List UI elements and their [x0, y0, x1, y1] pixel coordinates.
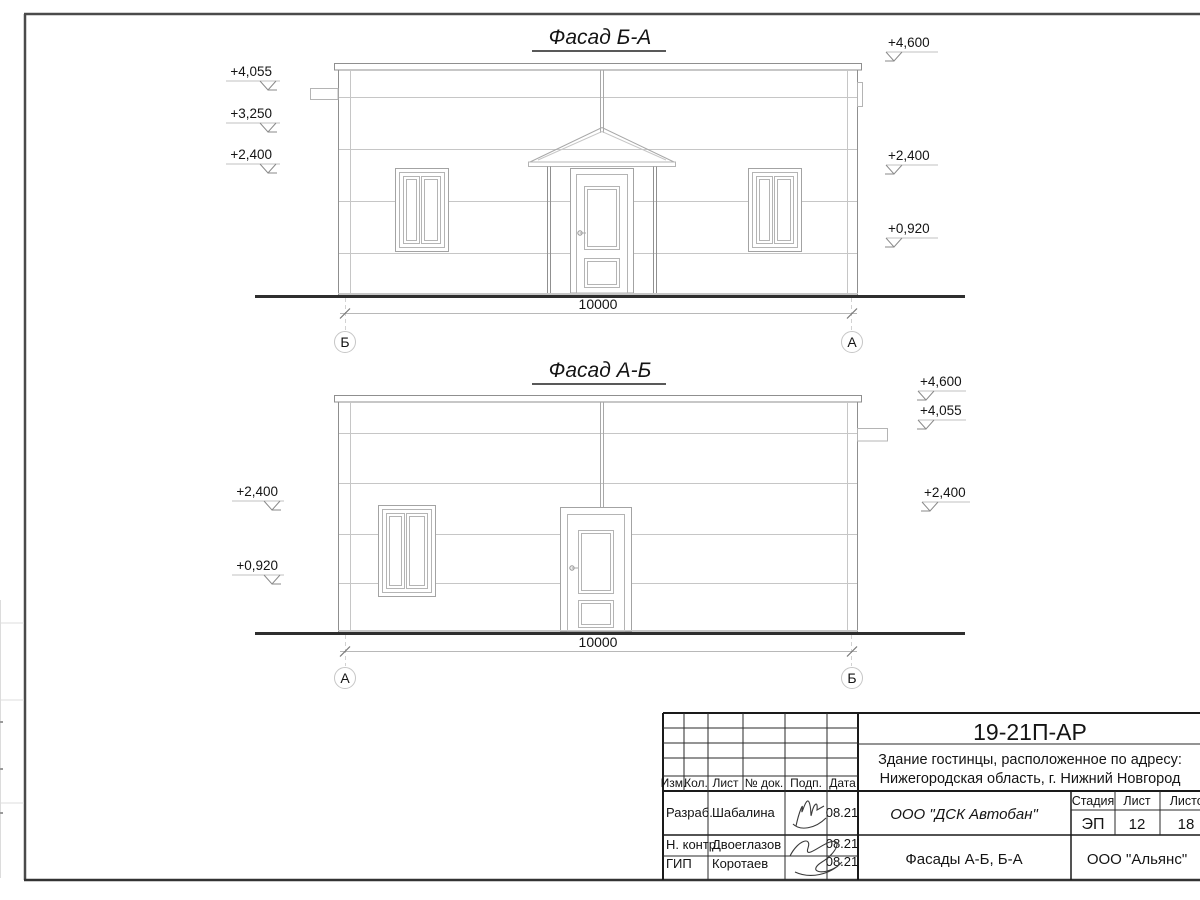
- drawing-sheet: Фасад Б-А: [0, 0, 1200, 900]
- signer-role: Разраб.: [666, 805, 713, 820]
- signer-name: Двоеглазов: [712, 837, 781, 852]
- sheet-value: 12: [1129, 816, 1146, 833]
- svg-text:Б: Б: [340, 334, 349, 350]
- col-podp: Подп.: [790, 776, 822, 790]
- sheets-label: Листов: [1170, 794, 1200, 808]
- project-address-line1: Здание гостинцы, расположенное по адресу…: [878, 752, 1182, 768]
- elevation-arrow-icon: [260, 123, 277, 132]
- elevation-arrow-icon: [921, 502, 938, 511]
- elevation-mark: +4,055: [917, 403, 966, 429]
- elevation-mark: +4,600: [917, 374, 966, 400]
- sheet-label: Лист: [1123, 794, 1150, 808]
- signer-name: Коротаев: [712, 856, 768, 871]
- elevation-arrow-icon: [917, 420, 934, 429]
- elevation-arrow-icon: [885, 238, 902, 247]
- svg-text:+2,400: +2,400: [888, 148, 930, 163]
- elevation-arrow-icon: [264, 575, 281, 584]
- project-address-line2: Нижегородская область, г. Нижний Новгоро…: [880, 771, 1181, 787]
- elevation-arrow-icon: [260, 81, 277, 90]
- elevation-arrow-icon: [885, 52, 902, 61]
- sheet-title: Фасады А-Б, Б-А: [905, 851, 1022, 868]
- elevation-mark: +0,920: [885, 221, 938, 247]
- elevation-mark: +4,055: [226, 64, 280, 90]
- facade-ba-axis-right: А: [842, 332, 863, 353]
- col-ndok: № док.: [745, 776, 783, 790]
- drawing-canvas: Фасад Б-А: [0, 0, 1200, 900]
- col-list: Лист: [712, 776, 739, 790]
- facade-ba-window-right: [749, 169, 802, 252]
- svg-text:+3,250: +3,250: [230, 106, 272, 121]
- svg-text:+4,055: +4,055: [230, 64, 272, 79]
- facade-ab-dimension: 10000: [340, 634, 857, 666]
- signer-row: Разраб. Шабалина 08.21: [666, 801, 858, 828]
- col-kol: Кол.: [684, 776, 708, 790]
- elevation-arrow-icon: [885, 165, 902, 174]
- downspout-right: [858, 83, 863, 107]
- svg-text:+2,400: +2,400: [924, 485, 966, 500]
- facade-ba-door: [571, 169, 634, 294]
- svg-text:+4,055: +4,055: [920, 403, 962, 418]
- facade-ab-window: [379, 506, 436, 597]
- elevation-mark: +0,920: [232, 558, 284, 584]
- dimension-label: 10000: [579, 296, 618, 312]
- signer-role: ГИП: [666, 856, 692, 871]
- elevation-mark: +2,400: [921, 485, 970, 511]
- svg-text:А: А: [340, 670, 350, 686]
- facade-ab-title: Фасад А-Б: [549, 359, 652, 382]
- elevation-mark: +2,400: [885, 148, 938, 174]
- svg-text:А: А: [847, 334, 857, 350]
- stage-label: Стадия: [1072, 794, 1115, 808]
- client-org: ООО "Альянс": [1087, 851, 1187, 868]
- elevation-arrow-icon: [260, 164, 277, 173]
- signer-date: 08.21: [826, 854, 859, 869]
- title-block: Изм. Кол. Лист № док. Подп. Дата Разраб.…: [661, 713, 1200, 880]
- svg-text:+2,400: +2,400: [230, 147, 272, 162]
- dimension-label: 10000: [579, 634, 618, 650]
- contractor-org: ООО "ДСК Автобан": [890, 806, 1038, 823]
- left-margin-table: [0, 600, 24, 878]
- facade-ba-dimension: 10000: [340, 296, 857, 330]
- elevation-mark: +2,400: [232, 484, 284, 510]
- svg-text:+2,400: +2,400: [236, 484, 278, 499]
- vent-pipe-left: [311, 89, 339, 100]
- facade-ba-axis-left: Б: [335, 332, 356, 353]
- elevation-mark: +2,400: [226, 147, 280, 173]
- svg-text:+4,600: +4,600: [888, 35, 930, 50]
- sheets-value: 18: [1178, 816, 1195, 833]
- signature-icon: [793, 801, 826, 828]
- col-data: Дата: [829, 776, 856, 790]
- signer-date: 08.21: [826, 805, 859, 820]
- elevation-mark: +3,250: [226, 106, 280, 132]
- signer-name: Шабалина: [712, 805, 776, 820]
- facade-ab-axis-left: А: [335, 668, 356, 689]
- facade-ab: Фасад А-Б: [232, 359, 970, 689]
- facade-ba-window-left: [396, 169, 449, 252]
- signer-date: 08.21: [826, 836, 859, 851]
- col-izm: Изм.: [661, 776, 687, 790]
- facade-ab-door: [561, 508, 632, 632]
- facade-ba-title: Фасад Б-А: [549, 26, 652, 49]
- elevation-mark: +4,600: [885, 35, 938, 61]
- elevation-arrow-icon: [917, 391, 934, 400]
- facade-ba: Фасад Б-А: [226, 26, 965, 353]
- svg-text:Б: Б: [847, 670, 856, 686]
- svg-text:+0,920: +0,920: [236, 558, 278, 573]
- elevation-arrow-icon: [264, 501, 281, 510]
- facade-ab-axis-right: Б: [842, 668, 863, 689]
- stage-value: ЭП: [1082, 816, 1105, 833]
- svg-text:+4,600: +4,600: [920, 374, 962, 389]
- document-code: 19-21П-АР: [973, 719, 1087, 745]
- vent-pipe-right: [858, 429, 888, 442]
- signer-row: Н. контр. Двоеглазов 08.21: [666, 836, 858, 852]
- svg-text:+0,920: +0,920: [888, 221, 930, 236]
